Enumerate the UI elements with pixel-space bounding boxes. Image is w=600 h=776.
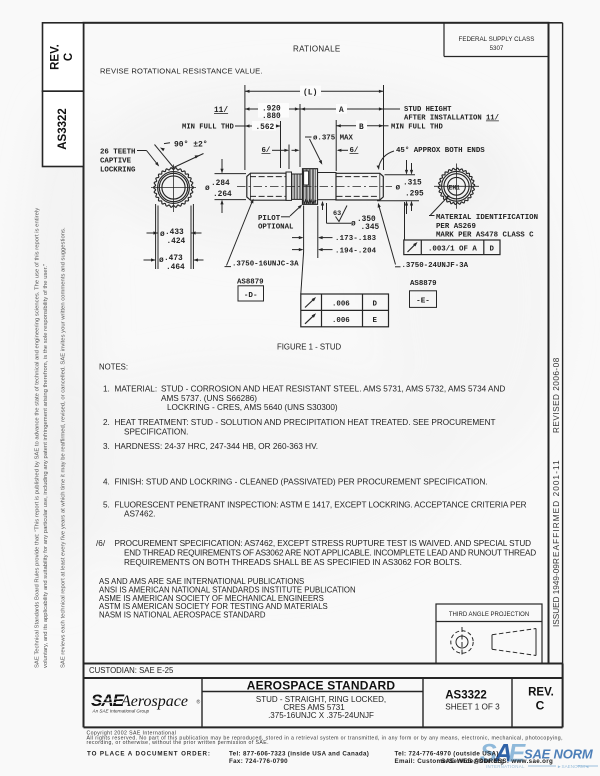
svg-text:6/: 6/ xyxy=(262,147,271,155)
svg-text:.424: .424 xyxy=(167,238,186,246)
svg-text:5307: 5307 xyxy=(490,45,504,52)
svg-text:MIN FULL THD: MIN FULL THD xyxy=(391,123,443,131)
svg-text:RATIONALE: RATIONALE xyxy=(293,45,340,54)
svg-text:Aerospace: Aerospace xyxy=(120,693,188,710)
svg-text:45° APPROX BOTH ENDS: 45° APPROX BOTH ENDS xyxy=(396,146,485,155)
svg-text:.350: .350 xyxy=(357,216,376,224)
svg-text:.006: .006 xyxy=(332,317,350,325)
svg-text:STUD - CORROSION AND HEAT RESI: STUD - CORROSION AND HEAT RESISTANT STEE… xyxy=(161,385,505,394)
svg-text:(L): (L) xyxy=(303,89,317,98)
svg-text:SAE reviews each technical rep: SAE reviews each technical report at lea… xyxy=(61,227,67,668)
svg-text:.173-.183: .173-.183 xyxy=(335,235,377,243)
svg-text:.345: .345 xyxy=(361,224,380,232)
svg-text:®: ® xyxy=(197,699,201,706)
svg-text:C: C xyxy=(63,53,75,61)
svg-text:FEDERAL SUPPLY CLASS: FEDERAL SUPPLY CLASS xyxy=(459,36,535,43)
svg-text:/6/: /6/ xyxy=(96,539,106,548)
svg-text:.264: .264 xyxy=(213,191,232,199)
svg-text:PER AS269: PER AS269 xyxy=(436,223,476,231)
svg-text:2.: 2. xyxy=(103,418,110,427)
svg-text:PROCUREMENT SPECIFICATION: AS: PROCUREMENT SPECIFICATION: AS7462, EXCEP… xyxy=(115,539,532,548)
svg-text:ISSUED 1949-09: ISSUED 1949-09 xyxy=(552,564,561,627)
svg-text:voluntary, and its applicabili: voluntary, and its applicability and sui… xyxy=(43,264,49,668)
svg-text:.006: .006 xyxy=(332,301,350,309)
svg-text:C: C xyxy=(536,699,545,713)
svg-text:EH1: EH1 xyxy=(449,185,461,192)
svg-text:AMS 5737. (UNS S66286): AMS 5737. (UNS S66286) xyxy=(161,394,257,403)
svg-text:FIGURE 1 - STUD: FIGURE 1 - STUD xyxy=(277,342,341,351)
svg-text:.315: .315 xyxy=(403,180,422,188)
svg-text:REV.: REV. xyxy=(50,44,62,70)
svg-text:PILOT: PILOT xyxy=(258,215,281,223)
svg-text:AS8879: AS8879 xyxy=(237,278,264,286)
svg-text:Tel: 877-606-7323 (inside USA: Tel: 877-606-7323 (inside USA and Canada… xyxy=(229,751,369,758)
svg-text:THIRD ANGLE PROJECTION: THIRD ANGLE PROJECTION xyxy=(449,612,529,618)
svg-text:LOCKRING: LOCKRING xyxy=(100,167,136,175)
svg-text:NOTES:: NOTES: xyxy=(99,362,128,371)
svg-text:D: D xyxy=(490,245,495,253)
svg-text:AEROSPACE STANDARD: AEROSPACE STANDARD xyxy=(247,678,396,692)
svg-text:►SAENORM◄: ►SAENORM◄ xyxy=(557,764,589,769)
svg-text:AS3322: AS3322 xyxy=(445,689,487,701)
svg-text:recording, or otherwise, witho: recording, or otherwise, without the pri… xyxy=(87,740,269,746)
svg-text:.003/1 OF A: .003/1 OF A xyxy=(428,245,477,253)
svg-text:.3750-16UNJC-3A: .3750-16UNJC-3A xyxy=(232,261,299,269)
svg-text:-E-: -E- xyxy=(416,297,430,305)
svg-text:6/: 6/ xyxy=(350,147,359,155)
svg-text:63: 63 xyxy=(333,210,341,218)
svg-text:CUSTODIAN: SAE E-25: CUSTODIAN: SAE E-25 xyxy=(89,666,174,675)
svg-text:.473: .473 xyxy=(164,255,183,263)
svg-text:TO PLACE A DOCUMENT ORDER:: TO PLACE A DOCUMENT ORDER: xyxy=(87,751,211,758)
svg-text:.464: .464 xyxy=(166,264,185,272)
svg-text:Tel: 724-776-4970 (outside USA: Tel: 724-776-4970 (outside USA) xyxy=(395,751,499,758)
svg-text:.433: .433 xyxy=(165,229,184,237)
svg-text:HARDNESS: 24-37 HRC, 247-344: HARDNESS: 24-37 HRC, 247-344 HB, OR 260-… xyxy=(115,442,319,451)
svg-text:90° ±2°: 90° ±2° xyxy=(174,141,208,150)
svg-text:.375-16UNJC X .375-24UNJF: .375-16UNJC X .375-24UNJF xyxy=(268,711,374,720)
svg-text:ø: ø xyxy=(396,185,401,193)
svg-text:3.: 3. xyxy=(103,442,110,451)
svg-text:REQUIREMENTS ON BOTH THREADS S: REQUIREMENTS ON BOTH THREADS SHALL BE AS… xyxy=(124,558,462,567)
svg-text:AS7462.: AS7462. xyxy=(124,510,155,519)
svg-text:ø: ø xyxy=(205,185,210,193)
svg-text:REVISE ROTATIONAL RESISTANCE V: REVISE ROTATIONAL RESISTANCE VALUE. xyxy=(100,67,263,76)
svg-text:.194-.204: .194-.204 xyxy=(335,247,377,255)
svg-text:AFTER INSTALLATION 11/: AFTER INSTALLATION 11/ xyxy=(404,115,499,123)
svg-text:.3750-24UNJF-3A: .3750-24UNJF-3A xyxy=(402,262,469,270)
svg-text:AS8879: AS8879 xyxy=(410,280,437,288)
svg-text:NASM IS NATIONAL AEROSPACE STA: NASM IS NATIONAL AEROSPACE STANDARD xyxy=(99,611,266,620)
svg-text:REVISED 2006-08: REVISED 2006-08 xyxy=(552,357,561,433)
svg-text:SAE WEB ADDRESS: www.sae.org: SAE WEB ADDRESS: www.sae.org xyxy=(441,758,553,765)
svg-text:26 TEETH: 26 TEETH xyxy=(100,149,135,157)
svg-text:MATERIAL IDENTIFICATION: MATERIAL IDENTIFICATION xyxy=(436,214,538,222)
svg-text:FLUORESCENT PENETRANT INSPECTI: FLUORESCENT PENETRANT INSPECTION: ASTM E… xyxy=(115,500,527,509)
svg-text:.562: .562 xyxy=(256,124,275,132)
svg-text:LOCKRING - CRES, AMS 5640 (UN: LOCKRING - CRES, AMS 5640 (UNS S30300) xyxy=(167,403,338,412)
svg-text:REV.: REV. xyxy=(528,687,554,699)
svg-text:SHEET 1 OF 3: SHEET 1 OF 3 xyxy=(445,703,500,712)
svg-text:STUD HEIGHT: STUD HEIGHT xyxy=(404,106,452,114)
svg-text:A: A xyxy=(339,107,344,115)
svg-text:11/: 11/ xyxy=(214,107,228,115)
svg-text:E: E xyxy=(373,317,378,325)
svg-text:REAFFIRMED 2001-11: REAFFIRMED 2001-11 xyxy=(552,459,561,564)
svg-text:SAE Technical Standards Board: SAE Technical Standards Board Rules prov… xyxy=(35,208,41,668)
svg-text:MIN FULL THD: MIN FULL THD xyxy=(182,124,234,132)
svg-text:-D-: -D- xyxy=(244,292,258,300)
svg-text:D: D xyxy=(373,301,378,309)
svg-text:END THREAD REQUIREMENTS OF AS3: END THREAD REQUIREMENTS OF AS3062 ARE NO… xyxy=(124,549,536,558)
svg-text:B: B xyxy=(359,124,364,132)
svg-text:OPTIONAL: OPTIONAL xyxy=(258,224,294,232)
svg-text:4.: 4. xyxy=(103,477,110,486)
svg-text:.284: .284 xyxy=(211,180,230,188)
svg-text:ø.375 MAX: ø.375 MAX xyxy=(313,135,353,143)
svg-text:MATERIAL:: MATERIAL: xyxy=(115,385,158,394)
svg-text:1.: 1. xyxy=(103,385,110,394)
svg-text:5.: 5. xyxy=(103,500,110,509)
svg-text:HEAT TREATMENT: STUD - SOLUTI: HEAT TREATMENT: STUD - SOLUTION AND PREC… xyxy=(115,418,496,427)
svg-text:.295: .295 xyxy=(405,190,424,198)
svg-text:AS3322: AS3322 xyxy=(57,108,69,150)
svg-text:Fax: 724-776-0790: Fax: 724-776-0790 xyxy=(229,758,288,765)
svg-text:An SAE International Group: An SAE International Group xyxy=(92,709,150,714)
svg-text:FINISH: STUD AND LOCKRING - C: FINISH: STUD AND LOCKRING - CLEANED (PAS… xyxy=(115,477,488,486)
svg-text:MARK PER AS478 CLASS C: MARK PER AS478 CLASS C xyxy=(436,231,534,239)
svg-text:ø: ø xyxy=(351,221,356,229)
svg-text:SAE: SAE xyxy=(91,691,125,710)
svg-text:SPECIFICATION.: SPECIFICATION. xyxy=(124,428,188,437)
svg-text:CAPTIVE: CAPTIVE xyxy=(100,158,132,166)
svg-text:.880: .880 xyxy=(262,113,281,121)
